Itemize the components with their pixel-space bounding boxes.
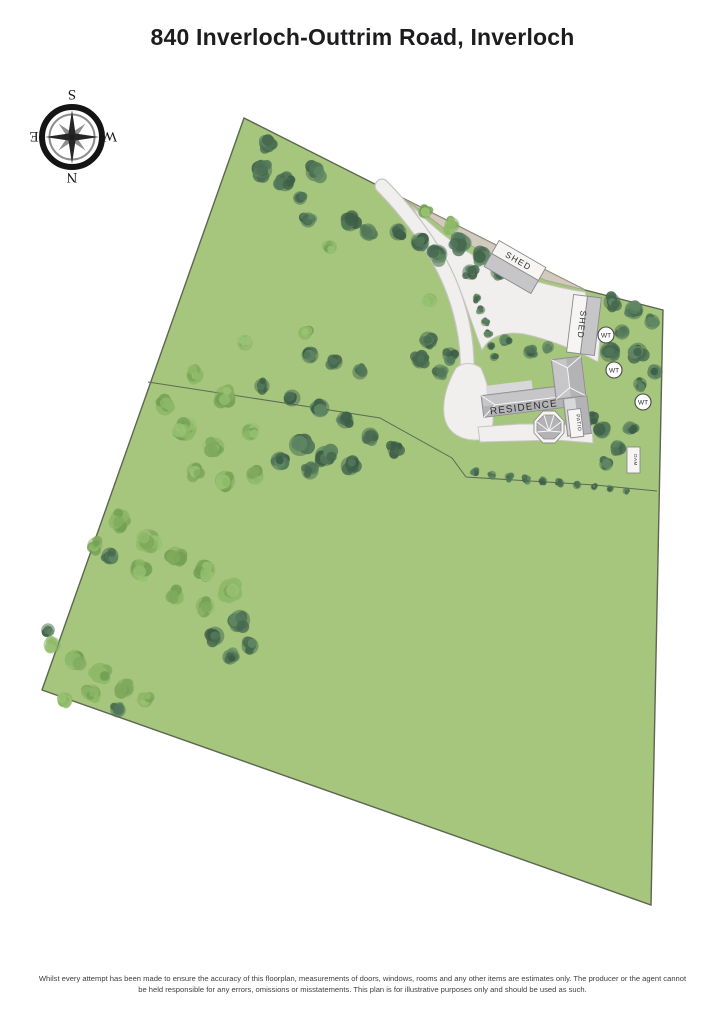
tree [41,623,55,637]
dam-structure: DAM [627,447,640,473]
disclaimer: Whilst every attempt has been made to en… [12,974,713,995]
tree [284,390,301,407]
tree [614,324,629,339]
tree [87,536,103,556]
water-tank-1: WT [598,327,614,343]
tree [44,635,61,653]
tree [57,692,73,708]
compass-south-label: S [68,86,76,102]
water-tank-2-label: WT [609,368,619,375]
tree [487,342,496,351]
tree [411,233,430,252]
tree [390,223,407,240]
water-tank-1-label: WT [601,333,611,340]
dam-label: DAM [633,454,638,466]
compass-east-label: E [29,128,38,144]
page-title: 840 Inverloch-Outtrim Road, Inverloch [0,24,725,51]
compass-rose: N E S W [29,86,117,185]
tree [600,342,620,362]
compass-west-label: W [102,128,117,144]
water-tank-3-label: WT [638,400,648,407]
site-plan: SHED SHED RESIDENCE PATIO WT WT WT [0,0,725,1024]
tree [271,452,290,471]
disclaimer-line-1: Whilst every attempt has been made to en… [12,974,713,985]
tree [302,347,319,364]
property-boundary [42,118,663,905]
bay-window [534,411,564,443]
tree [573,481,582,490]
water-tank-3: WT [635,394,651,410]
disclaimer-line-2: be held responsible for any errors, omis… [12,985,713,996]
compass-north-label: N [66,169,77,185]
water-tank-2: WT [606,362,622,378]
